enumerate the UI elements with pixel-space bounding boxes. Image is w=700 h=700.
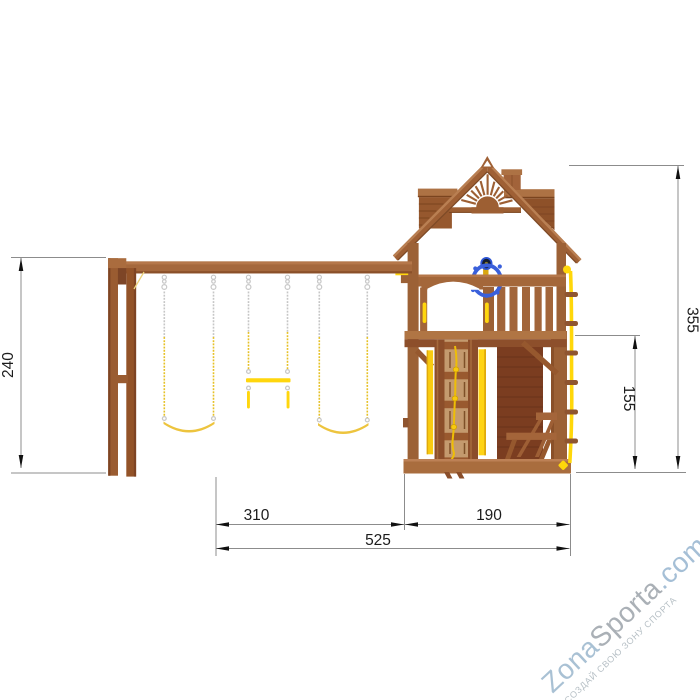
svg-text:355: 355: [684, 307, 700, 333]
svg-text:240: 240: [0, 352, 17, 378]
svg-text:525: 525: [365, 532, 391, 549]
svg-text:155: 155: [620, 386, 637, 412]
svg-text:310: 310: [244, 507, 270, 524]
svg-text:190: 190: [476, 507, 502, 524]
